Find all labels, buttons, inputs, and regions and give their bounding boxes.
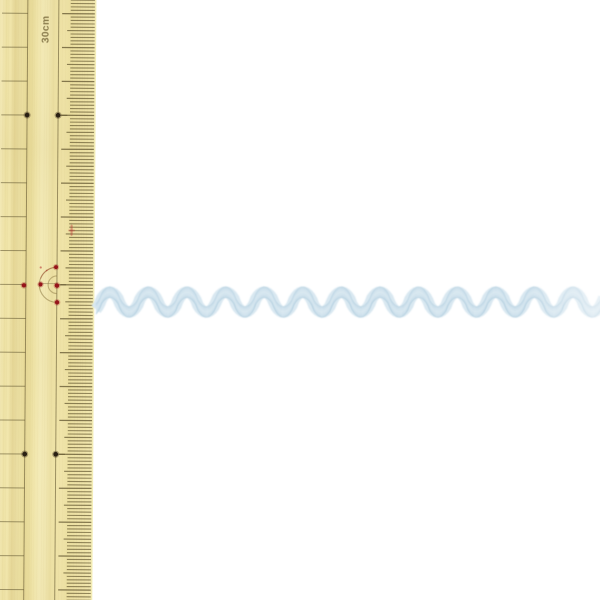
svg-text:30cm: 30cm [41,16,52,44]
